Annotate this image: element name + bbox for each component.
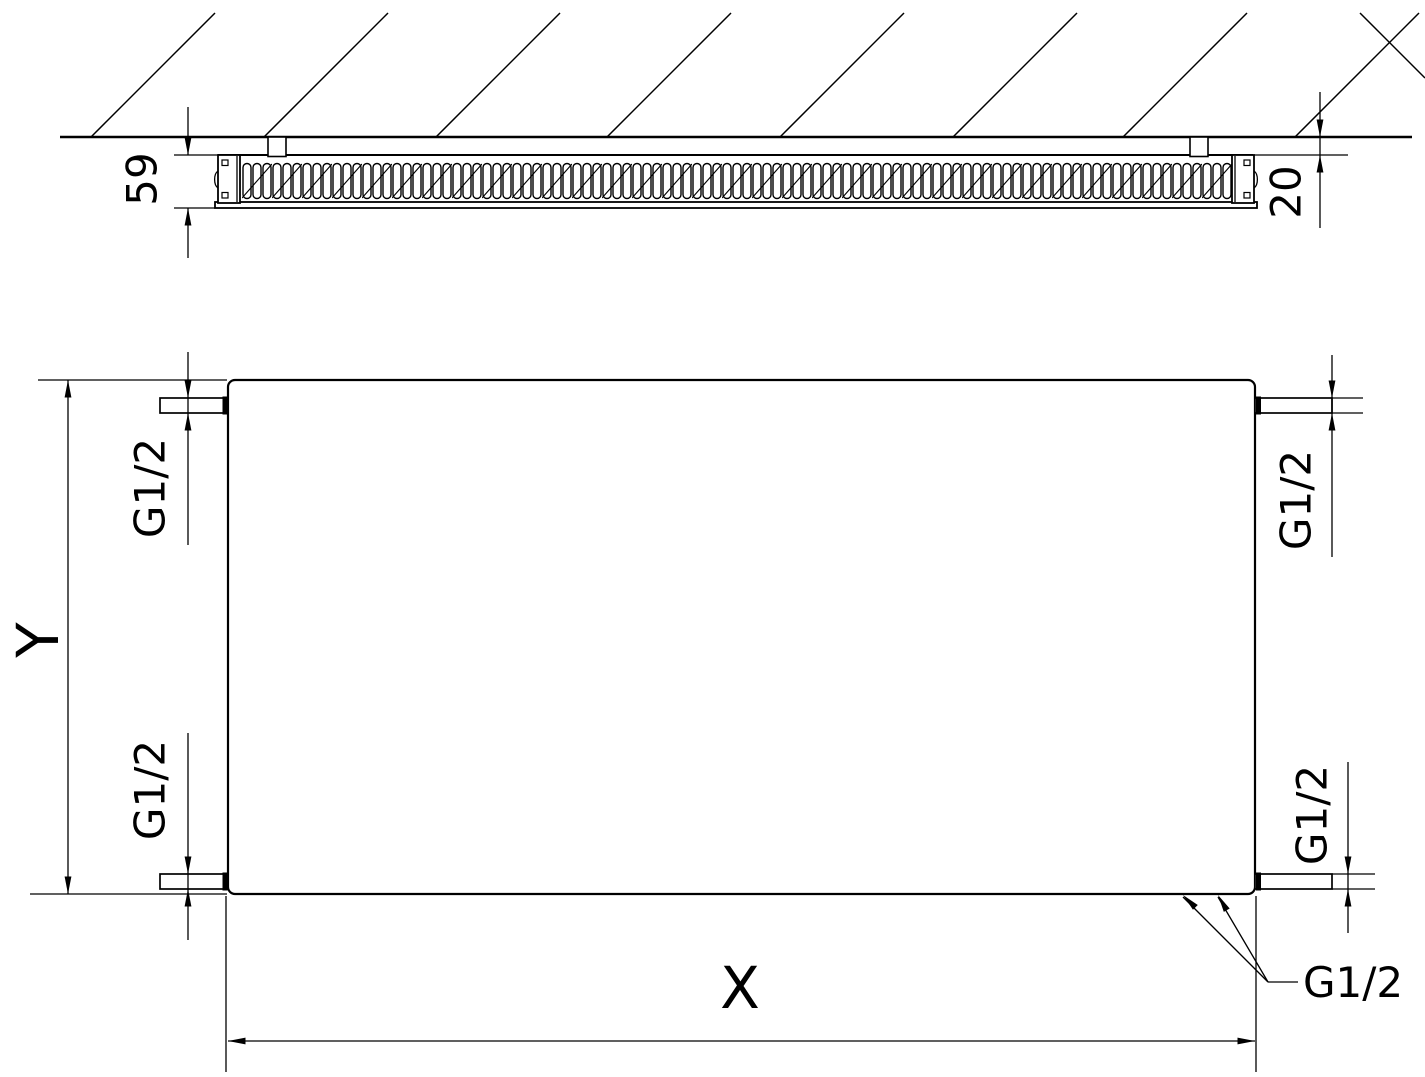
width-label: X [720,954,760,1022]
radiator-front-panel [228,380,1255,894]
depth-label: 59 [118,152,167,205]
drawing-svg: 59 20 [0,0,1425,1077]
connection-label-top-right: G1/2 [1272,450,1321,550]
front-panel-section [215,202,1257,208]
connection-label-bottom-left: G1/2 [126,740,175,840]
height-label: Y [4,622,72,659]
mounting-bracket-right [1190,137,1208,157]
wall-clearance-label: 20 [1262,165,1311,218]
bottom-outlets-label: G1/2 [1303,958,1403,1007]
radiator-technical-drawing: 59 20 [0,0,1425,1077]
connection-stub-top-left [160,397,228,415]
end-cap-left [215,155,240,203]
mounting-bracket-left [268,137,286,157]
convector-fins [242,162,1232,200]
connection-stub-bottom-left [160,873,228,891]
connection-label-bottom-right: G1/2 [1288,765,1337,865]
connection-label-top-left: G1/2 [126,438,175,538]
end-cap-right [1232,155,1257,203]
